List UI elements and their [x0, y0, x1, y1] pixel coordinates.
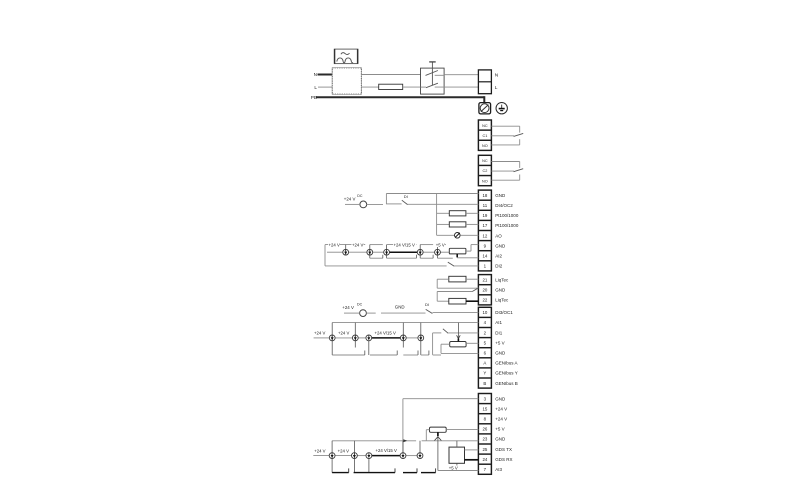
svg-text:+24 V: +24 V	[314, 331, 325, 336]
svg-text:+24 V: +24 V	[329, 242, 340, 247]
svg-text:GND: GND	[395, 305, 405, 310]
svg-text:+5 V: +5 V	[449, 465, 458, 470]
svg-text:L: L	[314, 85, 317, 90]
svg-text:+5 V: +5 V	[495, 427, 504, 432]
svg-text:DI: DI	[404, 194, 408, 199]
svg-text:GENIbus Y: GENIbus Y	[495, 371, 517, 376]
svg-text:Pt100/1000: Pt100/1000	[495, 223, 519, 228]
svg-text:24: 24	[482, 457, 487, 462]
svg-text:DI2: DI2	[495, 264, 503, 269]
svg-text:+24 V: +24 V	[314, 448, 325, 453]
svg-text:11: 11	[483, 203, 488, 208]
svg-text:NO: NO	[482, 179, 488, 183]
svg-text:17: 17	[482, 223, 487, 228]
svg-text:+24 V: +24 V	[342, 305, 354, 310]
svg-text:15: 15	[482, 406, 487, 411]
svg-text:GND: GND	[495, 396, 506, 401]
svg-text:AI1: AI1	[495, 320, 502, 325]
svg-text:DI3/OC1: DI3/OC1	[495, 310, 513, 315]
svg-text:LiqTec: LiqTec	[495, 298, 509, 303]
svg-text:DC: DC	[357, 194, 363, 198]
svg-text:26: 26	[482, 427, 487, 432]
svg-text:A: A	[483, 361, 486, 366]
svg-text:19: 19	[482, 213, 487, 218]
svg-text:+24 V: +24 V	[352, 242, 363, 247]
svg-text:GENIbus B: GENIbus B	[495, 381, 518, 386]
svg-text:23: 23	[482, 437, 487, 442]
svg-text:NC: NC	[482, 159, 488, 163]
svg-text:DI1: DI1	[495, 330, 503, 335]
svg-text:N: N	[314, 72, 317, 77]
svg-text:C1: C1	[482, 134, 487, 138]
svg-text:+24 V: +24 V	[344, 196, 356, 201]
svg-text:+24 V/15 V: +24 V/15 V	[376, 448, 398, 453]
svg-text:DI: DI	[425, 302, 429, 307]
svg-text:GND: GND	[495, 243, 506, 248]
svg-text:DC: DC	[357, 303, 363, 307]
svg-text:12: 12	[482, 233, 487, 238]
svg-text:25: 25	[482, 447, 487, 452]
svg-text:14: 14	[482, 253, 487, 258]
svg-text:AI3: AI3	[495, 467, 502, 472]
svg-text:+24 V/15 V: +24 V/15 V	[375, 331, 397, 336]
svg-text:C2: C2	[482, 169, 487, 173]
svg-text:18: 18	[482, 193, 487, 198]
svg-text:GND: GND	[495, 193, 506, 198]
svg-text:DI4/OC2: DI4/OC2	[495, 203, 513, 208]
svg-text:LiqTec: LiqTec	[495, 277, 509, 282]
svg-text:GENIbus A: GENIbus A	[495, 361, 517, 366]
svg-text:+24 V: +24 V	[338, 448, 349, 453]
svg-text:22: 22	[482, 298, 487, 303]
svg-text:20: 20	[482, 287, 487, 292]
svg-text:+24 V/15 V: +24 V/15 V	[394, 242, 416, 247]
svg-text:+5 V: +5 V	[436, 242, 445, 247]
svg-text:N: N	[495, 73, 499, 79]
svg-text:+5 V: +5 V	[495, 340, 504, 345]
svg-text:NO: NO	[482, 144, 488, 148]
svg-text:Pt100/1000: Pt100/1000	[495, 213, 519, 218]
svg-text:21: 21	[482, 277, 487, 282]
svg-text:B: B	[483, 381, 486, 386]
svg-text:GND: GND	[495, 287, 506, 292]
svg-text:10: 10	[482, 310, 487, 315]
svg-text:+24 V: +24 V	[495, 406, 507, 411]
svg-text:L: L	[495, 85, 498, 91]
svg-text:GDS TX: GDS TX	[495, 447, 512, 452]
svg-text:+24 V: +24 V	[338, 331, 349, 336]
svg-text:AO: AO	[495, 233, 502, 238]
svg-text:AI2: AI2	[495, 253, 502, 258]
svg-text:+24 V: +24 V	[495, 416, 507, 421]
svg-text:GND: GND	[495, 350, 506, 355]
svg-text:GND: GND	[495, 437, 506, 442]
svg-text:GDS RX: GDS RX	[495, 457, 512, 462]
svg-text:NC: NC	[482, 124, 488, 128]
svg-text:Y: Y	[483, 371, 486, 376]
